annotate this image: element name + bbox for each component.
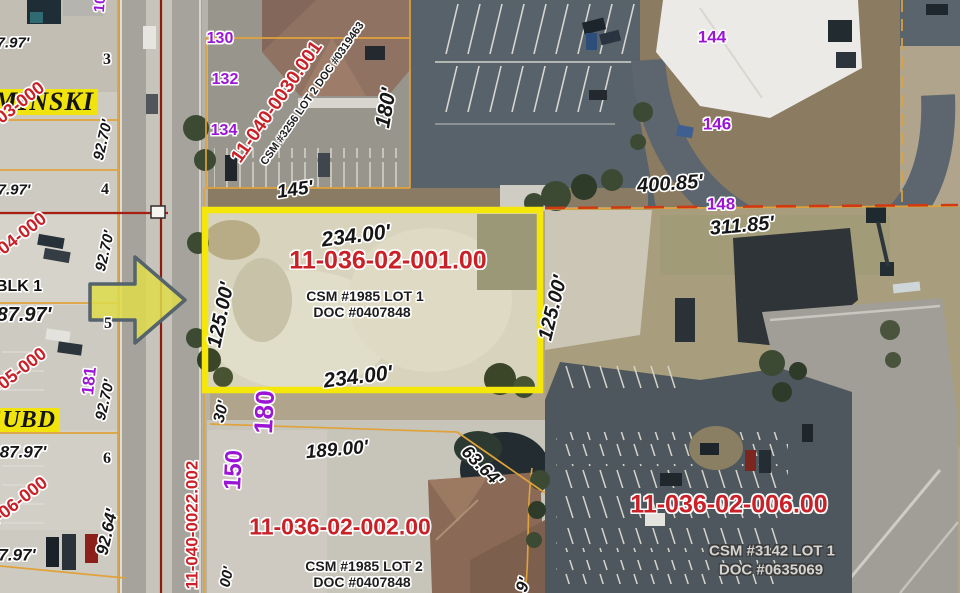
car [318,153,330,177]
car [589,90,607,100]
car [146,94,158,114]
top-center-lot [208,0,420,188]
car [645,513,665,526]
car [365,46,385,60]
car [586,33,597,50]
car [802,424,813,442]
truck [675,298,695,342]
car [700,443,719,455]
sign [866,206,886,223]
highlighted-parcel-outline [205,210,540,390]
aerial-photo [0,0,960,593]
parcel-map-canvas: MINSKI7.97'311-03-00092.70'7.97'411-04-0… [0,0,960,593]
car [143,26,156,49]
bottom-center-lot [207,420,550,593]
car [660,473,682,486]
car [745,450,756,471]
car [225,155,237,181]
car [759,450,771,473]
survey-node-marker [151,206,165,218]
car [926,4,948,15]
